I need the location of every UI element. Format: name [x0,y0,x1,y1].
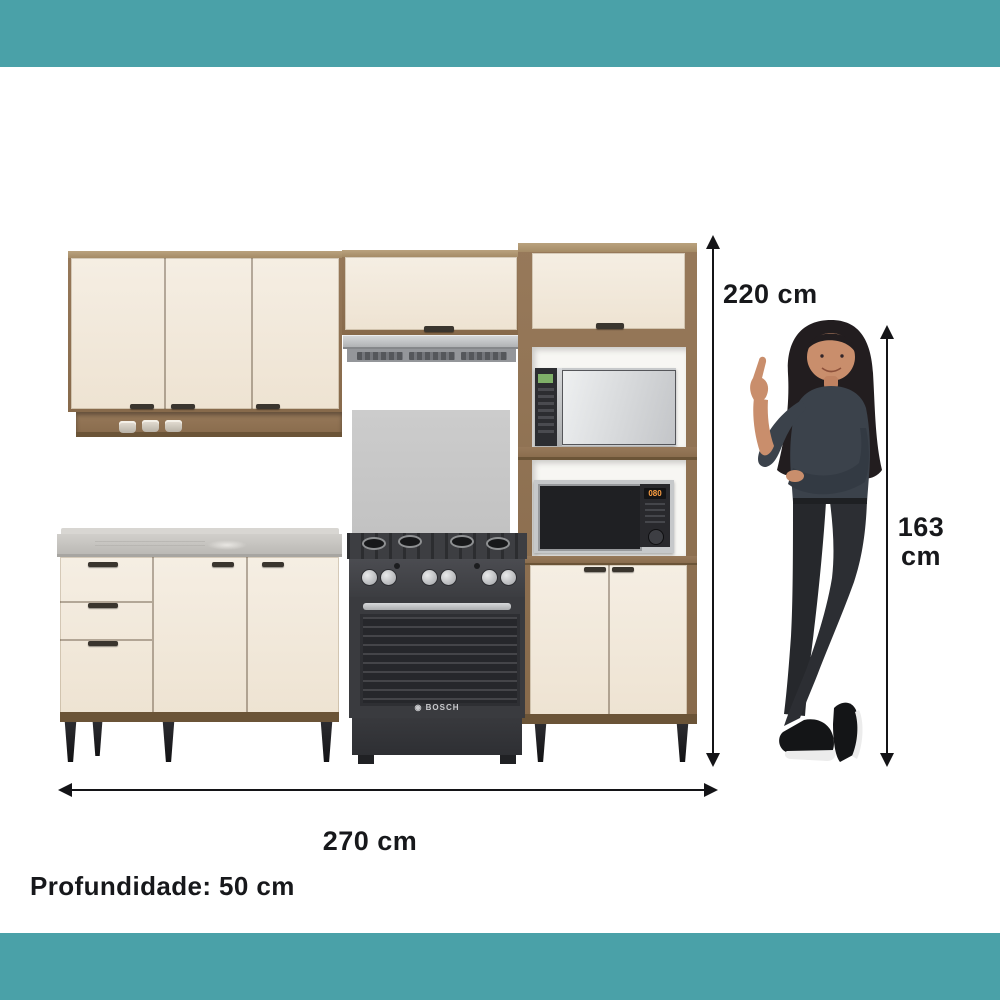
microwave-knob [648,529,664,545]
base-door-handle [212,562,234,567]
wall-cabinet-door-handle [171,404,195,409]
oven-glass [360,614,520,706]
microwave-upper [535,368,676,446]
hood-cabinet-top-edge [342,250,520,257]
bottom-accent-bar [0,933,1000,1000]
range-hood-underside [347,349,516,362]
arrowhead-down-icon [880,753,894,767]
wall-cabinet-left-top-edge [68,251,342,258]
hood-vent [357,352,403,360]
arrowhead-up-icon [880,325,894,339]
tower-lower-doors [530,565,687,716]
width-arrow-line [70,789,706,791]
person-waistband [793,498,867,504]
hood-vent [409,352,455,360]
tower-top-door [532,253,685,329]
arrowhead-down-icon [706,753,720,767]
drawer-handle [88,603,118,608]
hood-cabinet-door [345,257,517,330]
product-image: 080 [0,0,1000,1000]
width-label: 270 cm [58,826,682,857]
cabinet-leg [534,724,547,762]
person-hand [786,470,804,482]
stove-knob [380,569,397,586]
hood-vent [461,352,507,360]
person-eye [820,354,823,357]
cabinet-leg [676,724,689,762]
wall-cabinet-left [68,251,342,412]
stove-foot [358,755,374,764]
tower-shelf-band [518,447,697,460]
stove-knob [421,569,438,586]
sink-cabinet-body [60,557,339,714]
tower-cabinet: 080 [518,243,697,724]
stove-knob [481,569,498,586]
decor-cup [142,420,159,432]
cabinet-leg [162,722,175,762]
base-door-handle [262,562,284,567]
microwave-upper-display [538,374,553,383]
igniter-button [394,563,400,569]
microwave-lower-buttons [645,503,665,525]
range-hood [343,335,520,349]
stove-knob [500,569,517,586]
backsplash-panel [352,410,510,535]
cabinet-leg [320,722,333,762]
microwave-upper-buttons [538,388,554,436]
oven-door: ◉ BOSCH [349,597,525,718]
person-height-value: 163 [895,512,947,543]
countertop [57,534,342,557]
tower-band [518,556,697,565]
microwave-display: 080 [644,488,666,499]
door-divider [608,565,610,716]
front-divider [152,557,154,714]
microwave-lower-control-panel: 080 [640,484,670,547]
burner [362,537,386,550]
cabinet-leg [64,722,77,762]
person-height-arrow-line [886,337,888,755]
tower-top-edge [518,243,697,252]
wall-cabinet-left-doors [71,258,339,409]
tower-top-door-handle [596,323,624,329]
microwave-lower: 080 [534,480,674,553]
wall-cabinet-shelf [76,412,342,437]
hood-cabinet-handle [424,326,454,332]
drawer-handle [88,641,118,646]
microwave-upper-mirror-door [562,370,676,445]
tower-bottom-edge [518,714,697,724]
burner [486,537,510,550]
stove-foot [500,755,516,764]
drainboard-grooves [95,541,205,549]
person-pointing-hand [750,357,768,403]
arrowhead-right-icon [704,783,718,797]
person-height-unit: cm [895,541,947,572]
person-forearm [753,398,774,455]
arrowhead-left-icon [58,783,72,797]
tower-door-handle [584,567,606,572]
stove-knob [361,569,378,586]
cabinet-leg [92,722,103,756]
depth-label: Profundidade: 50 cm [30,871,295,902]
door-divider [164,258,166,409]
decor-cup [119,421,136,433]
hood-cabinet [342,250,520,335]
microwave-lower-door [538,484,642,551]
decor-cup [165,420,182,432]
height-arrow-line [712,247,714,755]
stove-knob [440,569,457,586]
base-bottom-edge [60,712,339,722]
tower-door-handle [612,567,634,572]
burner [398,535,422,548]
stove-brand-label: ◉ BOSCH [349,703,525,712]
arrowhead-up-icon [706,235,720,249]
igniter-button [474,563,480,569]
person-eye [840,354,843,357]
sneaker-sole [785,750,836,761]
drawer-handle [88,562,118,567]
stove-brand-text: BOSCH [426,703,460,712]
height-label: 220 cm [723,279,818,310]
wall-cabinet-door-handle [256,404,280,409]
front-divider [246,557,248,714]
top-accent-bar [0,0,1000,67]
burner [450,535,474,548]
wall-cabinet-door-handle [130,404,154,409]
sink-bowl [207,540,247,550]
stove-base-drawer [352,718,522,755]
oven-handle [363,603,511,610]
door-divider [251,258,253,409]
model-person [736,310,888,770]
microwave-upper-control-panel [535,368,557,446]
